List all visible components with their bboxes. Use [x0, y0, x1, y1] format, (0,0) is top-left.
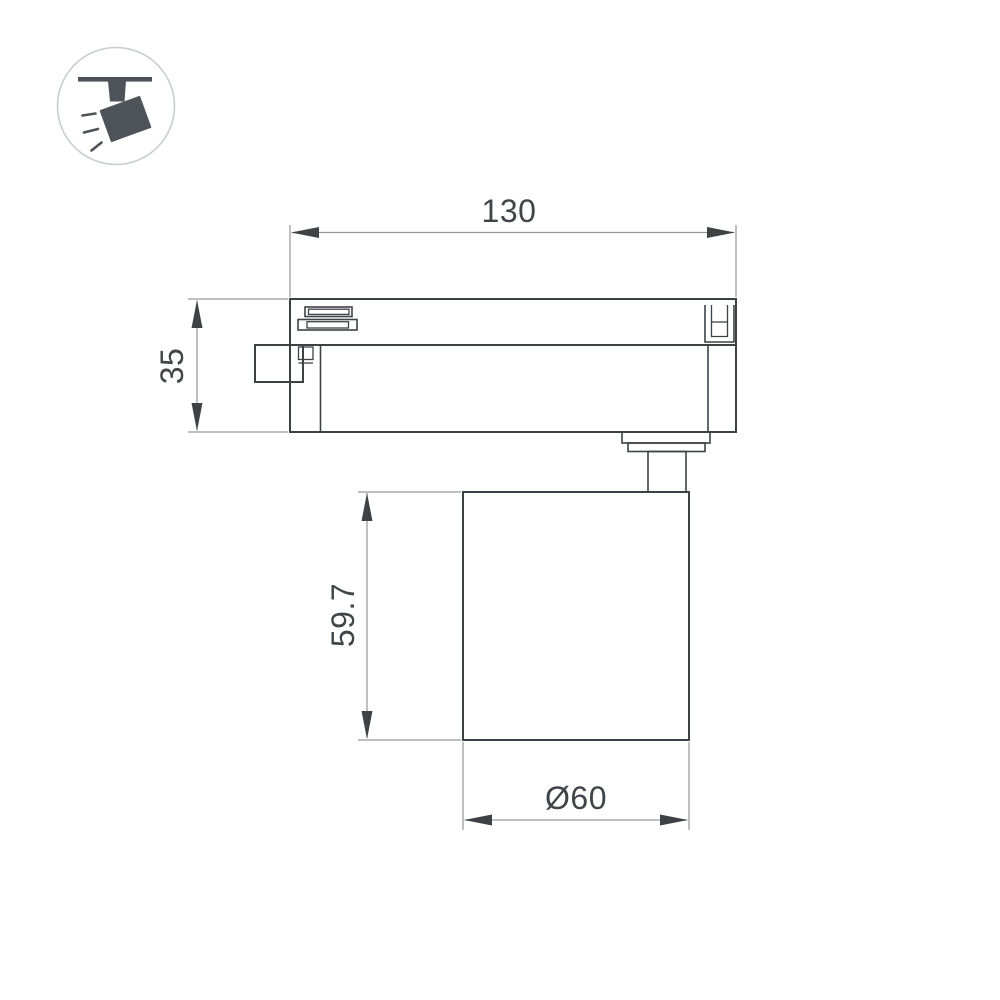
fixture-side-view	[255, 299, 736, 740]
dimension-head-diameter: Ø60	[463, 742, 689, 830]
dimension-head-height: 59.7	[325, 492, 461, 740]
swivel-flange-upper	[622, 432, 710, 443]
dim-label-overall-width: 130	[482, 193, 537, 229]
technical-drawing-page: 130 35 59.7 Ø60	[0, 0, 1000, 1000]
icon-mount-stem	[108, 81, 126, 102]
dim-label-head-diameter: Ø60	[545, 780, 607, 816]
arrowhead-left	[464, 815, 492, 826]
icon-track-bar	[78, 77, 152, 82]
adapter-clip-upper-inner	[309, 309, 350, 314]
dim-label-adapter-height: 35	[154, 348, 190, 385]
arrowhead-top	[362, 493, 373, 521]
arrowhead-bottom	[192, 403, 203, 431]
track-light-dimension-drawing: 130 35 59.7 Ø60	[0, 0, 1000, 1000]
latch-inner	[712, 305, 728, 337]
arrowhead-right	[707, 227, 735, 238]
arrowhead-left	[291, 227, 319, 238]
dim-label-head-height: 59.7	[325, 583, 361, 647]
side-knob-notch	[299, 347, 314, 360]
lamp-head-cylinder	[463, 492, 689, 740]
arrowhead-top	[192, 300, 203, 328]
adapter-clip-upper	[305, 307, 352, 317]
side-knob	[255, 345, 303, 382]
dimension-adapter-height: 35	[154, 299, 288, 432]
dimension-overall-width: 130	[290, 193, 736, 297]
swivel-flange-lower	[628, 443, 705, 452]
driver-body-outline	[290, 345, 736, 432]
adapter-latch-bracket	[705, 305, 734, 342]
track-spotlight-icon	[58, 48, 175, 165]
arrowhead-right	[660, 815, 688, 826]
arrowhead-bottom	[362, 711, 373, 739]
swivel-stem	[648, 452, 686, 493]
adapter-clip-lower-inner	[307, 322, 349, 328]
